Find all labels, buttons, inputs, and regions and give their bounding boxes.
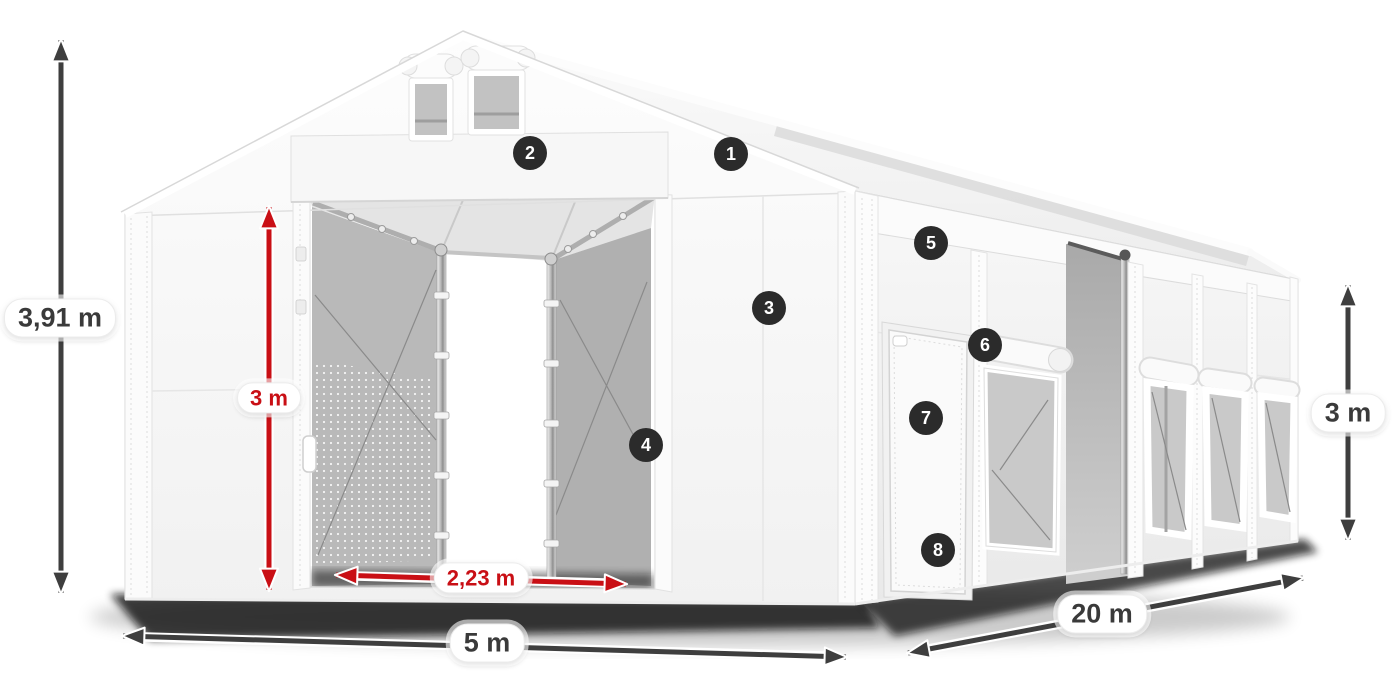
front-door-interior bbox=[310, 194, 655, 589]
side-window-2 bbox=[1147, 368, 1190, 536]
feature-badge-3[interactable]: 3 bbox=[752, 291, 786, 325]
side-door-opening bbox=[1066, 243, 1131, 584]
tent-illustration bbox=[0, 0, 1400, 700]
side-height-label: 3 m bbox=[1311, 393, 1386, 432]
door-height-label: 3 m bbox=[237, 382, 301, 413]
feature-badge-8[interactable]: 8 bbox=[921, 533, 955, 567]
front-width-label: 5 m bbox=[450, 623, 525, 662]
side-window-3 bbox=[1206, 378, 1245, 528]
door-header-band bbox=[291, 132, 668, 202]
feature-badge-2[interactable]: 2 bbox=[513, 136, 547, 170]
feature-badge-1[interactable]: 1 bbox=[714, 137, 748, 171]
door-width-label: 2,23 m bbox=[434, 562, 529, 593]
feature-badge-6[interactable]: 6 bbox=[968, 328, 1002, 362]
door-handle bbox=[303, 436, 316, 472]
door-frame-pole-left bbox=[434, 244, 449, 584]
feature-badge-5[interactable]: 5 bbox=[914, 226, 948, 260]
total-height-label: 3,91 m bbox=[4, 298, 116, 337]
side-window-4 bbox=[1261, 386, 1294, 519]
length-label: 20 m bbox=[1057, 594, 1147, 633]
feature-badge-7[interactable]: 7 bbox=[909, 401, 943, 435]
feature-badge-4[interactable]: 4 bbox=[629, 428, 663, 462]
tent-dimension-diagram: 3,91 m 3 m 2,23 m 5 m 20 m 3 m 1 2 3 4 5… bbox=[0, 0, 1400, 700]
